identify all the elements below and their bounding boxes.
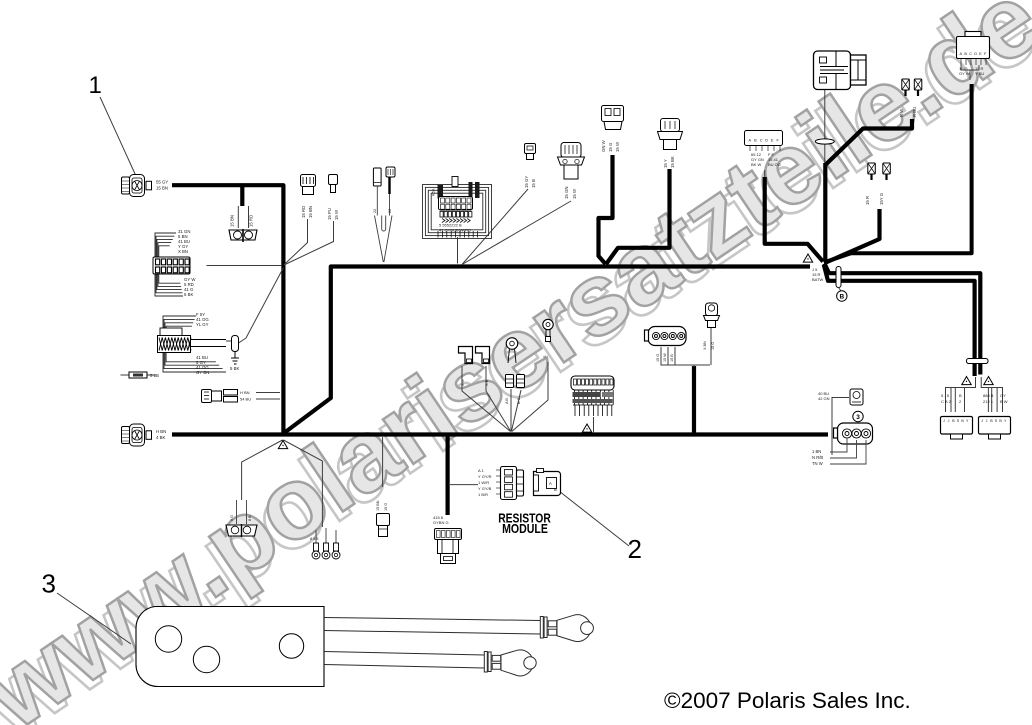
svg-text:5 BK: 5 BK	[184, 292, 193, 297]
svg-text:8 B: 8 B	[248, 515, 252, 521]
svg-text:E: E	[771, 139, 774, 143]
svg-text:BU OG: BU OG	[768, 162, 781, 167]
svg-text:3: 3	[42, 569, 56, 599]
svg-text:GY: GY	[1000, 393, 1006, 398]
svg-text:888 B: 888 B	[983, 393, 994, 398]
svg-text:55 GY: 55 GY	[156, 180, 168, 185]
svg-text:1: 1	[89, 72, 102, 99]
svg-text:J: J	[948, 419, 950, 423]
svg-text:8 5 5: 8 5 5	[310, 537, 318, 541]
svg-text:15 W: 15 W	[615, 141, 620, 152]
svg-text:E: E	[979, 52, 982, 56]
svg-text:©2007 Polaris Sales Inc.: ©2007 Polaris Sales Inc.	[664, 688, 911, 713]
svg-text:D: D	[974, 52, 977, 56]
svg-text:1 BN: 1 BN	[812, 449, 821, 454]
svg-text:C B 2: C B 2	[941, 399, 952, 404]
svg-text:X BN: X BN	[703, 341, 707, 350]
svg-text:15 BK: 15 BK	[670, 156, 675, 168]
svg-text:15 RD: 15 RD	[301, 206, 306, 218]
svg-text:15 G: 15 G	[608, 142, 613, 152]
svg-text:22: 22	[388, 209, 392, 213]
svg-text:15 B: 15 B	[531, 179, 536, 188]
svg-text:GN W: GN W	[601, 139, 606, 152]
svg-text:15 Y: 15 Y	[663, 159, 668, 168]
svg-text:H BN: H BN	[156, 429, 166, 434]
svg-text:15 G: 15 G	[656, 354, 660, 362]
svg-text:15 G: 15 G	[384, 503, 388, 511]
svg-text:S B: S B	[485, 379, 489, 386]
svg-text:B: B	[839, 293, 844, 300]
svg-text:15 GY: 15 GY	[524, 176, 529, 188]
svg-text:J: J	[981, 419, 983, 423]
svg-text:3: 3	[856, 414, 860, 421]
svg-text:Y GY/B: Y GY/B	[478, 486, 492, 491]
svg-text:15Y G: 15Y G	[879, 192, 884, 205]
svg-text:2: 2	[628, 534, 642, 564]
svg-text:15 B: 15 B	[670, 354, 674, 362]
svg-text:D: D	[765, 139, 768, 143]
svg-text:15 W: 15 W	[334, 209, 339, 220]
svg-text:B: B	[964, 52, 967, 56]
svg-text:9 G: 9 G	[230, 515, 234, 521]
svg-text:15 BN: 15 BN	[376, 500, 380, 511]
svg-text:B: B	[959, 393, 962, 398]
svg-text:54 BU: 54 BU	[240, 397, 251, 402]
svg-text:15 GN: 15 GN	[564, 187, 569, 199]
svg-text:B: B	[554, 487, 557, 492]
svg-text:15 BN: 15 BN	[230, 215, 235, 227]
svg-text:J: J	[943, 419, 945, 423]
svg-text:GYBN G: GYBN G	[433, 520, 449, 525]
svg-text:B C: B C	[517, 397, 521, 404]
svg-text:212 1: 212 1	[983, 399, 994, 404]
svg-text:A: A	[549, 481, 552, 486]
svg-text:15 PU: 15 PU	[327, 208, 332, 220]
svg-text:MODULE: MODULE	[502, 521, 548, 536]
svg-text:1 W/R: 1 W/R	[478, 480, 489, 485]
svg-text:K5A: K5A	[431, 188, 436, 196]
svg-text:R W: R W	[899, 108, 904, 117]
svg-text:S G: S G	[461, 379, 465, 386]
svg-text:H BN: H BN	[240, 390, 250, 395]
svg-text:5 LB: 5 LB	[150, 373, 159, 378]
svg-text:BK W: BK W	[751, 162, 761, 167]
svg-text:C: C	[969, 52, 972, 56]
svg-text:TN W: TN W	[812, 461, 823, 466]
svg-text:5 BK: 5 BK	[230, 366, 239, 371]
svg-text:C: C	[760, 139, 763, 143]
svg-text:15 BN: 15 BN	[156, 186, 168, 191]
svg-text:15 R: 15 R	[865, 196, 870, 205]
svg-text:22: 22	[373, 209, 377, 213]
svg-text:Y BU: Y BU	[975, 71, 984, 76]
svg-text:GY W: GY W	[959, 71, 970, 76]
svg-text:B W: B W	[1000, 399, 1008, 404]
svg-text:1 B/R: 1 B/R	[478, 492, 488, 497]
svg-text:15 W: 15 W	[663, 353, 667, 362]
svg-text:J: J	[986, 419, 988, 423]
svg-text:A 1: A 1	[478, 468, 485, 473]
svg-text:YL GY: YL GY	[196, 322, 209, 327]
svg-text:42 GN: 42 GN	[818, 396, 830, 401]
svg-text:A B: A B	[505, 398, 509, 404]
svg-text:5 - 5: 5 - 5	[941, 393, 950, 398]
svg-text:Y GY/R: Y GY/R	[478, 474, 492, 479]
svg-text:GY BN: GY BN	[196, 370, 209, 375]
svg-text:15 BN: 15 BN	[308, 206, 313, 218]
svg-text:BATW: BATW	[812, 277, 823, 282]
svg-text:B: B	[754, 139, 757, 143]
svg-text:N R/B: N R/B	[812, 455, 823, 460]
svg-text:41 GYBUBNWRD: 41 GYBUBNWRD	[439, 228, 471, 233]
svg-text:15 W: 15 W	[572, 188, 577, 199]
svg-text:15 RD: 15 RD	[249, 215, 254, 227]
svg-text:R BU: R BU	[912, 107, 917, 117]
svg-text:X BN: X BN	[178, 249, 188, 254]
svg-text:4 BK: 4 BK	[156, 435, 165, 440]
svg-text:15 G: 15 G	[711, 342, 715, 350]
